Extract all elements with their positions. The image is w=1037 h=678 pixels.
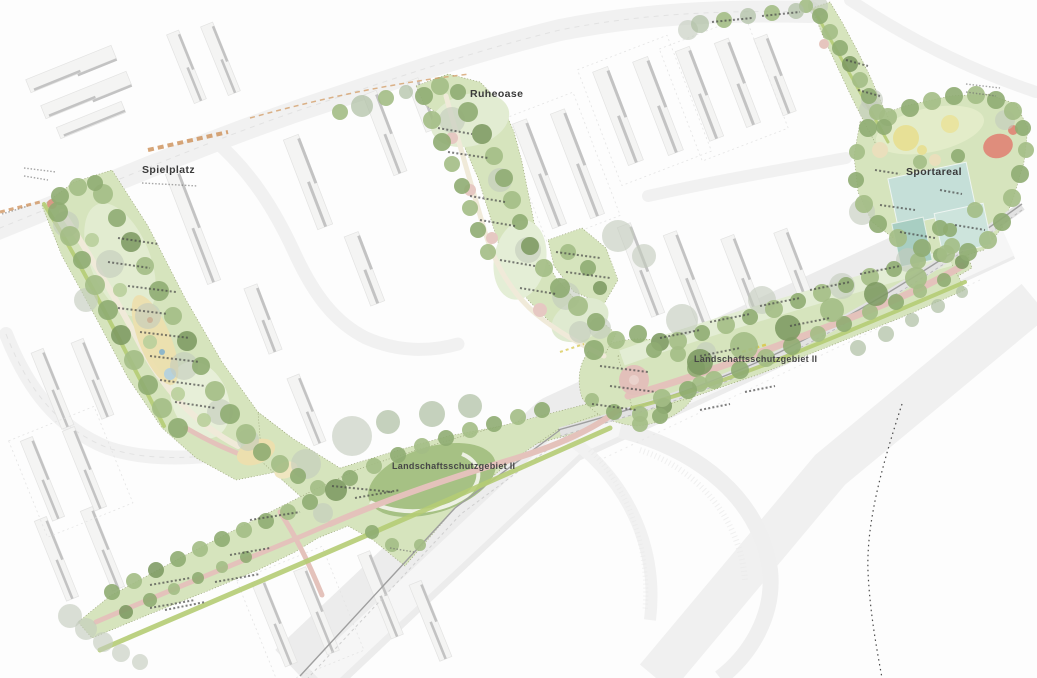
landscape-site-plan: Spielplatz Ruheoase Sportareal Landschaf… [0, 0, 1037, 678]
plan-graphic [0, 0, 1037, 678]
